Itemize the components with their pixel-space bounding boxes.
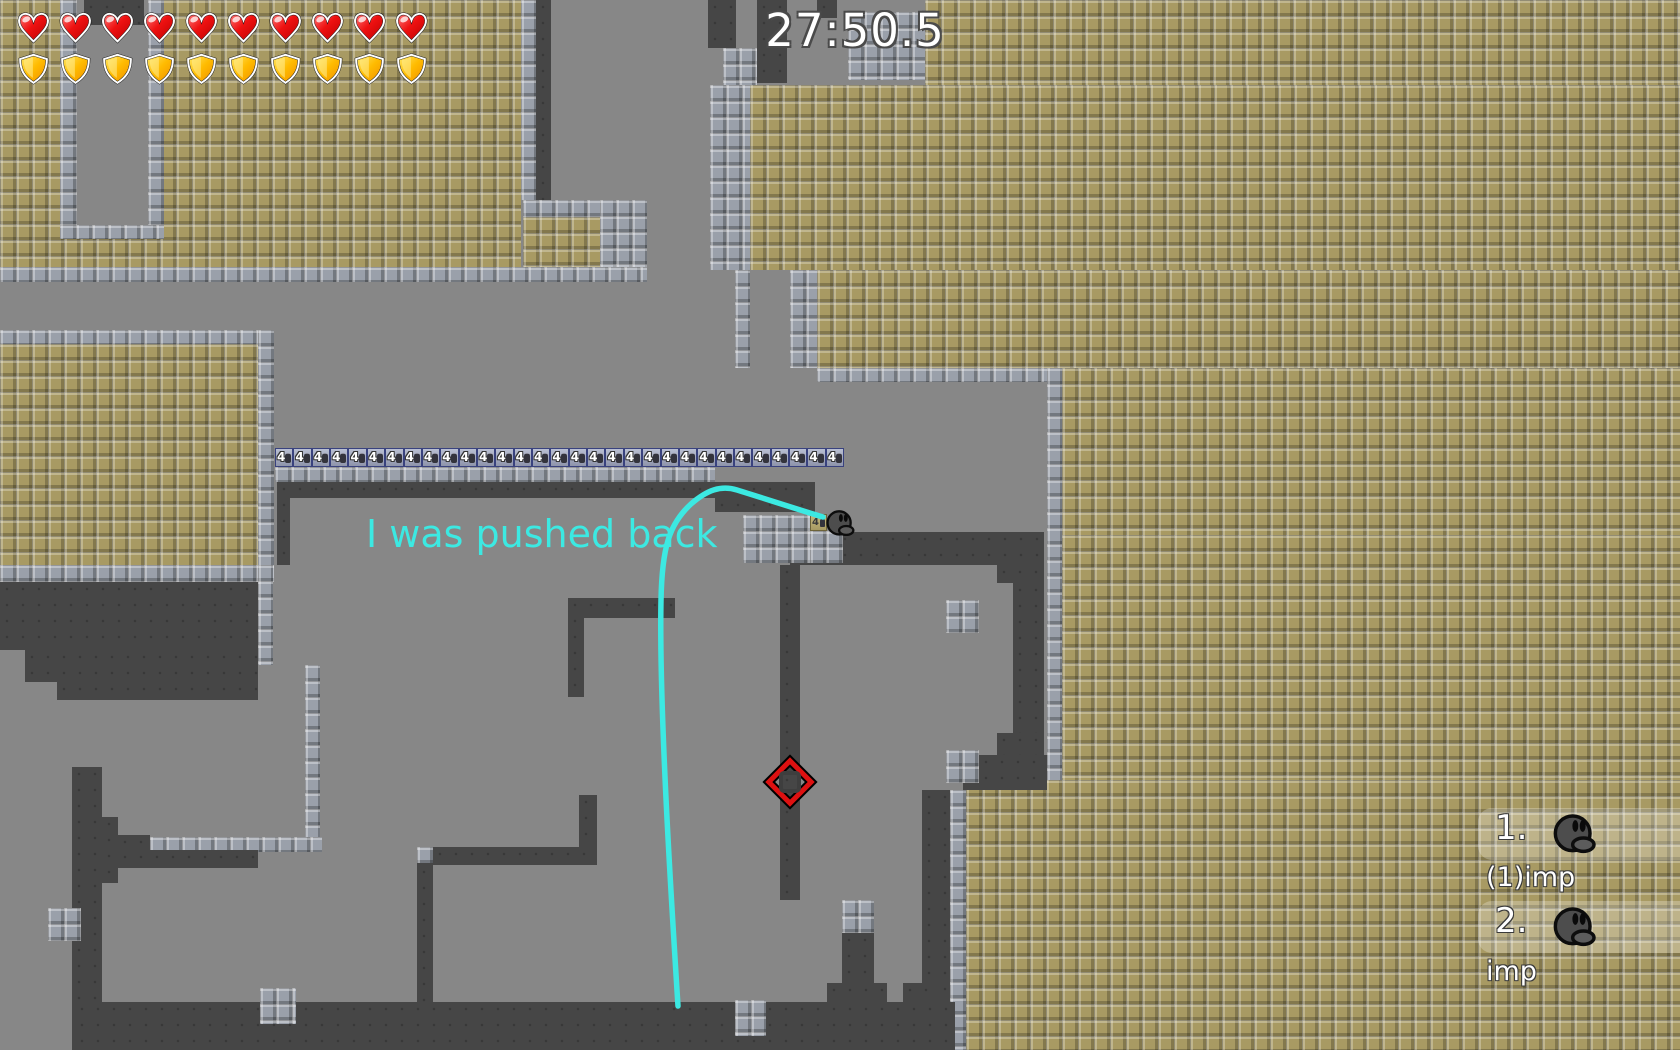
imp-character — [824, 506, 856, 538]
health-bar — [14, 8, 431, 48]
heart-icon — [392, 8, 431, 48]
game-timer: 27:50.5 — [700, 4, 1010, 57]
shield-icon — [14, 50, 53, 90]
heart-icon — [140, 8, 179, 48]
game-viewport[interactable]: 4 4 4 4 4 4 4 4 — [0, 0, 1680, 1050]
shield-icon — [266, 50, 305, 90]
armor-bar — [14, 50, 431, 90]
heart-icon — [98, 8, 137, 48]
scoreboard-rank: 1. — [1495, 808, 1527, 848]
shield-icon — [308, 50, 347, 90]
target-marker-icon — [762, 754, 818, 810]
shield-icon — [182, 50, 221, 90]
heart-icon — [224, 8, 263, 48]
scoreboard-name: (1)imp — [1486, 862, 1575, 893]
heart-icon — [308, 8, 347, 48]
shield-icon — [56, 50, 95, 90]
heart-icon — [266, 8, 305, 48]
imp-avatar-icon — [1550, 808, 1598, 856]
shield-icon — [98, 50, 137, 90]
scoreboard-name: imp — [1486, 956, 1537, 987]
shield-icon — [392, 50, 431, 90]
scoreboard-rank: 2. — [1495, 901, 1527, 941]
heart-icon — [182, 8, 221, 48]
heart-icon — [56, 8, 95, 48]
imp-avatar-icon — [1550, 901, 1598, 949]
status-message: I was pushed back — [366, 512, 718, 556]
heart-icon — [14, 8, 53, 48]
shield-icon — [140, 50, 179, 90]
shield-icon — [350, 50, 389, 90]
heart-icon — [350, 8, 389, 48]
shield-icon — [224, 50, 263, 90]
